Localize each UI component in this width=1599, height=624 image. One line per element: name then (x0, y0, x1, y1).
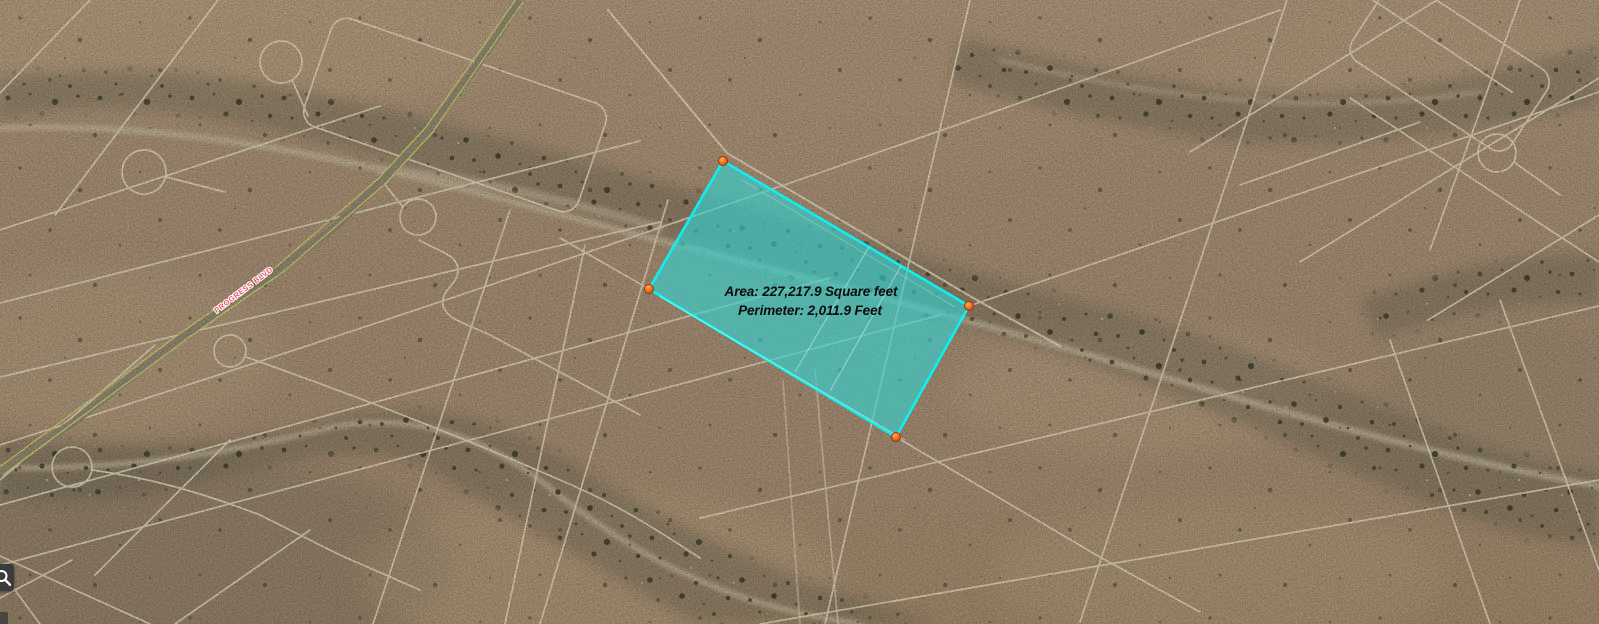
area-measurement-label: Area: 227,217.9 Square feet (724, 284, 899, 299)
map-canvas[interactable]: Area: 227,217.9 Square feet Perimeter: 2… (0, 0, 1599, 624)
vertex-marker[interactable] (964, 301, 973, 310)
vertex-marker[interactable] (644, 284, 653, 293)
map-stage: Area: 227,217.9 Square feet Perimeter: 2… (0, 0, 1599, 624)
offscreen-control-fragment[interactable] (0, 612, 8, 624)
vertex-marker[interactable] (891, 432, 900, 441)
magnifier-icon (0, 567, 14, 589)
vertex-marker[interactable] (718, 156, 727, 165)
perimeter-measurement-label: Perimeter: 2,011.9 Feet (738, 303, 882, 318)
zoom-button[interactable] (0, 564, 14, 591)
